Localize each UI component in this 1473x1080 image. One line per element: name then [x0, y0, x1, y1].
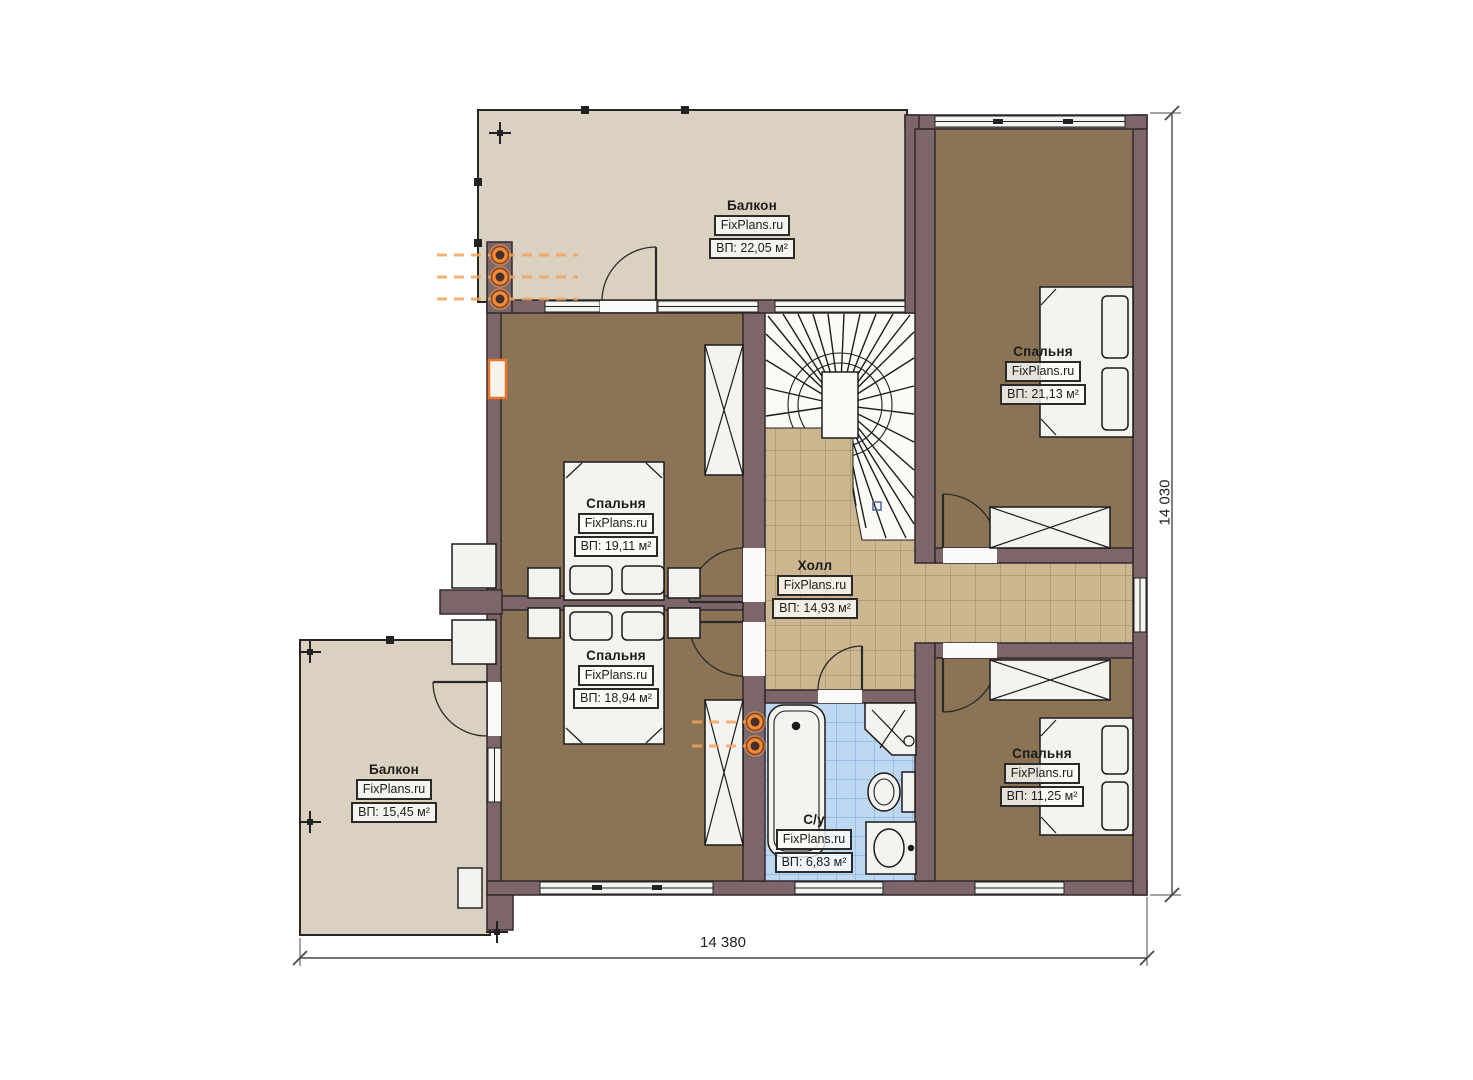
brand-watermark: FixPlans.ru — [578, 513, 655, 534]
room-label-balcony-top: Балкон FixPlans.ru ВП: 22,05 м² — [672, 198, 832, 259]
wall-stub — [487, 895, 513, 930]
window-symbol — [658, 301, 758, 312]
window-symbol — [545, 301, 600, 312]
window-symbol — [775, 301, 905, 312]
dimension-height-label: 14 030 — [1157, 448, 1174, 558]
brand-watermark: FixPlans.ru — [714, 215, 791, 236]
wardrobe-symbol — [990, 507, 1110, 548]
floor-plan-drawing — [0, 0, 1473, 1080]
room-area: ВП: 6,83 м² — [775, 852, 854, 873]
floor-plan-page: Балкон FixPlans.ru ВП: 22,05 м² Спальня … — [0, 0, 1473, 1080]
dimension-width-label: 14 380 — [663, 934, 783, 951]
room-area: ВП: 18,94 м² — [573, 688, 659, 709]
room-label-bedroom-bottom-right: Спальня FixPlans.ru ВП: 11,25 м² — [962, 746, 1122, 807]
room-name: Холл — [798, 558, 833, 573]
room-name: Балкон — [727, 198, 777, 213]
corridor-floor — [915, 563, 1133, 643]
room-label-bedroom-left-lower: Спальня FixPlans.ru ВП: 18,94 м² — [536, 648, 696, 709]
balcony-post — [681, 106, 689, 114]
room-area: ВП: 21,13 м² — [1000, 384, 1086, 405]
window-symbol — [488, 748, 501, 802]
window-symbol — [540, 882, 713, 894]
window-symbol — [975, 882, 1064, 894]
room-label-balcony-bottom-left: Балкон FixPlans.ru ВП: 15,45 м² — [314, 762, 474, 823]
balcony-post — [581, 106, 589, 114]
shaft-symbol — [489, 360, 506, 398]
balcony-post — [474, 239, 482, 247]
radiator-symbol — [744, 735, 766, 757]
wardrobe-symbol — [990, 660, 1110, 700]
wall-hall-right-upper — [915, 129, 935, 563]
wall-hall-right-lower — [915, 643, 935, 881]
room-area: ВП: 15,45 м² — [351, 802, 437, 823]
room-name: Спальня — [586, 496, 646, 511]
room-name: Балкон — [369, 762, 419, 777]
wall-right — [1133, 115, 1147, 895]
brand-watermark: FixPlans.ru — [1005, 361, 1082, 382]
radiator-symbol — [489, 244, 511, 266]
window-symbol — [935, 116, 1125, 127]
room-name: Спальня — [586, 648, 646, 663]
brand-watermark: FixPlans.ru — [1004, 763, 1081, 784]
balcony-pillar — [458, 868, 482, 908]
room-area: ВП: 11,25 м² — [1000, 786, 1085, 807]
room-label-bedroom-left-upper: Спальня FixPlans.ru ВП: 19,11 м² — [536, 496, 696, 557]
balcony-post — [386, 636, 394, 644]
wardrobe-symbol — [705, 345, 743, 475]
balcony-post — [474, 178, 482, 186]
brand-watermark: FixPlans.ru — [578, 665, 655, 686]
brand-watermark: FixPlans.ru — [777, 575, 854, 596]
radiator-symbol — [489, 266, 511, 288]
toilet-symbol — [868, 772, 915, 812]
room-label-bedroom-top-right: Спальня FixPlans.ru ВП: 21,13 м² — [963, 344, 1123, 405]
window-symbol — [1134, 578, 1146, 632]
wall-pier — [440, 590, 502, 614]
radiator-symbol — [489, 288, 511, 310]
room-name: Спальня — [1013, 344, 1073, 359]
room-area: ВП: 14,93 м² — [772, 598, 858, 619]
radiator-symbol — [744, 711, 766, 733]
brand-watermark: FixPlans.ru — [356, 779, 433, 800]
room-name: Спальня — [1012, 746, 1072, 761]
nightstand-symbol — [452, 620, 496, 664]
room-area: ВП: 22,05 м² — [709, 238, 795, 259]
room-label-hall: Холл FixPlans.ru ВП: 14,93 м² — [735, 558, 895, 619]
nightstand-symbol — [452, 544, 496, 588]
room-label-bathroom: С/у FixPlans.ru ВП: 6,83 м² — [734, 812, 894, 873]
brand-watermark: FixPlans.ru — [776, 829, 853, 850]
room-area: ВП: 19,11 м² — [574, 536, 659, 557]
room-name: С/у — [803, 812, 825, 827]
window-symbol — [795, 882, 883, 894]
